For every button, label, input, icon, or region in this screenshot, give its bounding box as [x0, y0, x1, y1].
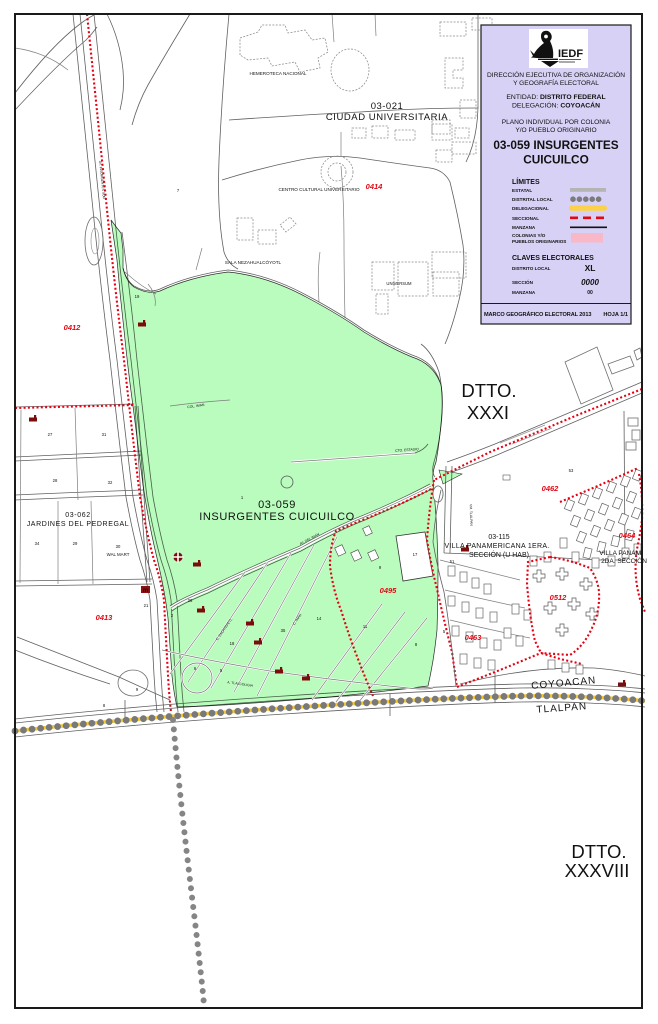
svg-text:DELEGACIÓN: COYOACÁN: DELEGACIÓN: COYOACÁN — [512, 101, 600, 110]
svg-text:0495: 0495 — [380, 586, 398, 595]
svg-text:SECCIÓN (U HAB): SECCIÓN (U HAB) — [469, 550, 529, 559]
svg-text:VILLA PANAM.: VILLA PANAM. — [599, 550, 643, 557]
svg-text:03-059: 03-059 — [258, 499, 296, 511]
svg-text:HEMEROTECA NACIONAL: HEMEROTECA NACIONAL — [250, 71, 307, 76]
svg-text:DTTO.: DTTO. — [571, 841, 626, 862]
svg-text:0463: 0463 — [465, 633, 483, 642]
svg-text:0462: 0462 — [542, 484, 560, 493]
svg-text:UNIVERSUM: UNIVERSUM — [386, 281, 412, 286]
svg-text:0413: 0413 — [96, 613, 114, 622]
svg-text:JARDINES DEL PEDREGAL: JARDINES DEL PEDREGAL — [27, 521, 130, 528]
svg-text:11: 11 — [363, 624, 368, 629]
svg-text:53: 53 — [569, 468, 574, 473]
svg-text:18: 18 — [230, 641, 235, 646]
svg-text:30: 30 — [116, 544, 121, 549]
svg-text:DIRECCIÓN EJECUTIVA DE ORGANIZ: DIRECCIÓN EJECUTIVA DE ORGANIZACIÓN — [487, 70, 625, 79]
svg-text:SECCIÓN: SECCIÓN — [512, 278, 534, 285]
svg-text:ESTATAL: ESTATAL — [512, 188, 532, 193]
svg-text:DELEGACIONAL: DELEGACIONAL — [512, 206, 549, 211]
svg-text:29: 29 — [73, 541, 78, 546]
svg-text:0000: 0000 — [581, 278, 599, 287]
svg-text:DISTRITAL LOCAL: DISTRITAL LOCAL — [512, 197, 553, 202]
svg-text:WAL MART: WAL MART — [107, 552, 130, 557]
svg-text:31: 31 — [102, 432, 107, 437]
svg-text:2DA. SECCIÓN: 2DA. SECCIÓN — [601, 556, 647, 565]
svg-text:IEDF: IEDF — [558, 48, 583, 60]
svg-text:SALA NEZAHUALCÓYOTL: SALA NEZAHUALCÓYOTL — [225, 259, 282, 265]
svg-text:CENTRO CULTURAL UNIVERSITARIO: CENTRO CULTURAL UNIVERSITARIO — [278, 187, 360, 192]
svg-text:0414: 0414 — [366, 182, 384, 191]
svg-text:VM. TLALPAN: VM. TLALPAN — [469, 504, 474, 526]
svg-text:32: 32 — [108, 480, 113, 485]
svg-text:PLANO INDIVIDUAL POR COLONIA: PLANO INDIVIDUAL POR COLONIA — [502, 119, 611, 126]
svg-text:VILLA PANAMERICANA 1ERA.: VILLA PANAMERICANA 1ERA. — [444, 543, 549, 550]
svg-text:DTTO.: DTTO. — [461, 380, 516, 401]
svg-text:HOJA 1/1: HOJA 1/1 — [603, 312, 628, 318]
svg-text:27: 27 — [48, 432, 53, 437]
svg-text:Y/O PUEBLO ORIGINARIO: Y/O PUEBLO ORIGINARIO — [515, 127, 596, 134]
svg-text:DISTRITO LOCAL: DISTRITO LOCAL — [512, 266, 551, 271]
svg-text:XXXI: XXXI — [467, 402, 509, 423]
svg-text:COLONIAS Y/O: COLONIAS Y/O — [512, 233, 546, 238]
svg-text:MARCO GEOGRÁFICO ELECTORAL 20: MARCO GEOGRÁFICO ELECTORAL 2013 — [484, 311, 591, 318]
svg-text:21: 21 — [144, 603, 149, 608]
svg-text:51: 51 — [450, 559, 455, 564]
svg-text:CIUDAD UNIVERSITARIA: CIUDAD UNIVERSITARIA — [326, 112, 448, 123]
svg-text:LÍMITES: LÍMITES — [512, 177, 540, 186]
svg-text:03-062: 03-062 — [65, 512, 90, 519]
svg-text:28: 28 — [53, 478, 58, 483]
svg-text:XXXVIII: XXXVIII — [565, 860, 630, 881]
svg-text:35: 35 — [281, 628, 286, 633]
svg-text:03-059 INSURGENTES: 03-059 INSURGENTES — [493, 138, 618, 152]
svg-text:19: 19 — [135, 294, 140, 299]
svg-text:m: m — [143, 588, 148, 594]
svg-text:03-021: 03-021 — [371, 101, 404, 112]
svg-text:CUICUILCO: CUICUILCO — [523, 153, 589, 167]
svg-text:26: 26 — [188, 598, 193, 603]
svg-text:34: 34 — [35, 541, 40, 546]
svg-text:PUEBLOS ORIGINARIOS: PUEBLOS ORIGINARIOS — [512, 239, 566, 244]
svg-text:0512: 0512 — [550, 593, 568, 602]
svg-text:14: 14 — [317, 616, 322, 621]
svg-text:0464: 0464 — [619, 531, 637, 540]
svg-text:MANZANA: MANZANA — [512, 290, 536, 295]
svg-text:ENTIDAD: DISTRITO FEDERAL: ENTIDAD: DISTRITO FEDERAL — [506, 94, 605, 101]
svg-text:17: 17 — [413, 552, 418, 557]
svg-text:0412: 0412 — [64, 323, 82, 332]
svg-text:MANZANA: MANZANA — [512, 225, 536, 230]
svg-text:XL: XL — [585, 263, 596, 273]
svg-text:CLAVES ELECTORALES: CLAVES ELECTORALES — [512, 255, 594, 262]
svg-text:INSURGENTES CUICUILCO: INSURGENTES CUICUILCO — [199, 511, 355, 523]
svg-text:Y GEOGRAFÍA ELECTORAL: Y GEOGRAFÍA ELECTORAL — [513, 78, 599, 87]
svg-text:00: 00 — [587, 290, 593, 296]
svg-text:03-115: 03-115 — [488, 534, 509, 541]
svg-text:SECCIONAL: SECCIONAL — [512, 216, 539, 221]
